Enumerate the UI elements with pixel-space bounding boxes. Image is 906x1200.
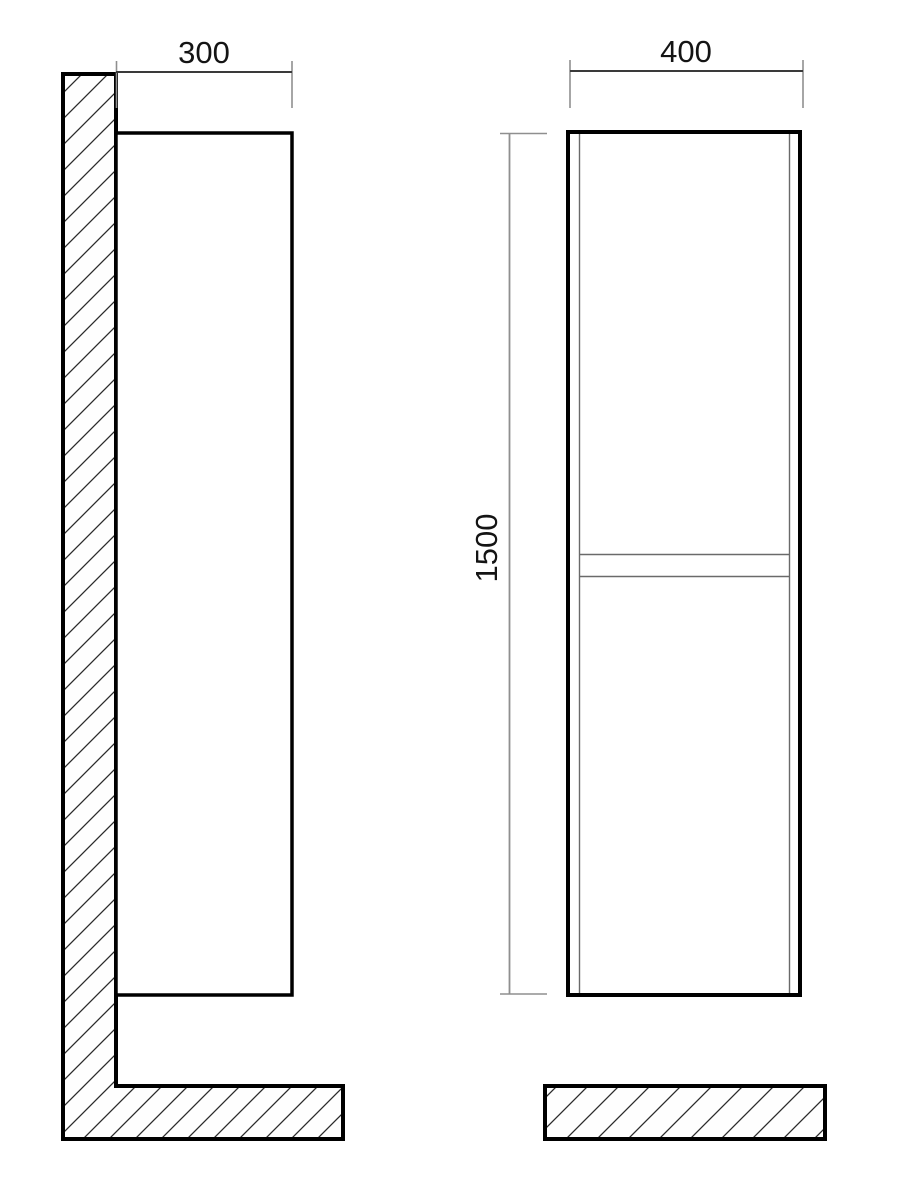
dimension-depth: 300 — [116, 35, 292, 108]
technical-drawing-page: 300 400 1500 — [0, 0, 906, 1200]
dimension-height-label: 1500 — [469, 514, 504, 583]
cabinet-side-view — [116, 133, 292, 995]
dimension-height: 1500 — [469, 133, 547, 994]
cabinet-front-view — [568, 132, 800, 995]
cabinet-dimension-drawing: 300 400 1500 — [0, 0, 906, 1200]
dimension-depth-label: 300 — [178, 35, 230, 70]
dimension-width: 400 — [570, 34, 803, 108]
floor-section-front — [545, 1086, 825, 1139]
dimension-width-label: 400 — [660, 34, 712, 69]
